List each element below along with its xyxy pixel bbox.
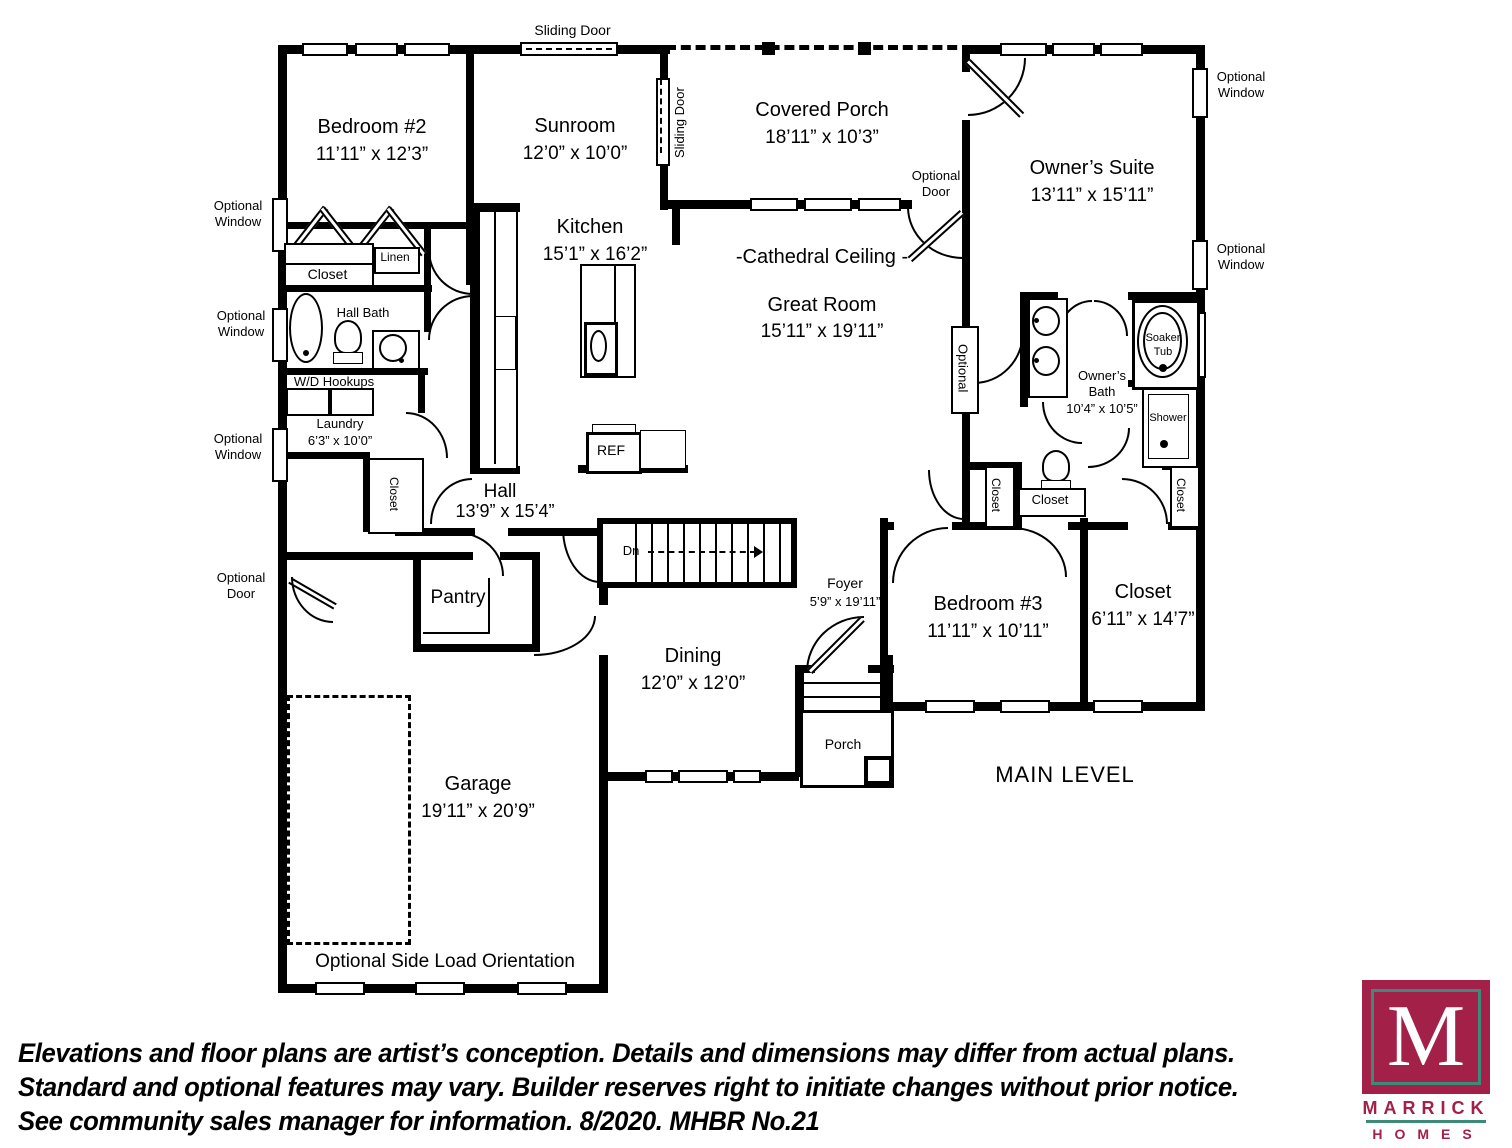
toilet-icon [1042,450,1070,482]
main-level-title: MAIN LEVEL [965,761,1165,789]
logo-rule [1366,1120,1486,1123]
room-dims-foyer: 5’9” x 19’11” [800,594,890,610]
door-swing-icon [428,250,473,295]
sliding-door-label-vertical: Sliding Door [672,78,688,168]
toilet-tank [333,352,363,364]
marrick-homes-logo: M [1362,980,1490,1094]
optional-window-label: Optional Window [1208,241,1274,274]
closet-label-vertical: Closet [386,462,401,526]
window-symbol [678,770,728,783]
optional-door-label: Optional Door [901,168,971,201]
wall [962,120,970,330]
room-label-sunroom: Sunroom [480,114,670,139]
wall [599,655,608,993]
wall [418,368,425,413]
window-symbol [1100,43,1143,56]
door-swing-icon [1088,428,1130,468]
optional-door-label: Optional Door [206,570,276,603]
sink-drain [1034,358,1039,363]
window-symbol [1093,700,1143,713]
room-dims-dining: 12’0” x 12’0” [593,672,793,696]
wall [1128,292,1197,300]
room-label-kitchen: Kitchen [505,215,675,240]
room-label-pantry: Pantry [413,586,503,610]
stair-direction-arrowhead [754,546,763,558]
window-symbol [804,198,852,211]
door-swing-icon [291,577,333,623]
kitchen-counter2 [640,430,686,469]
window-symbol [645,770,673,783]
sink-drain [1034,318,1039,323]
logo-sub-name: HOMES [1362,1126,1494,1142]
porch-step-line [800,682,888,684]
room-label-bedroom2: Bedroom #2 [272,115,472,140]
optional-window-label: Optional Window [1208,69,1274,102]
room-dims-laundry: 6’3” x 10’0” [298,433,382,449]
porch-roof-dashed-line [666,45,972,50]
window-symbol [858,198,901,211]
stairs-down-label: Dn [616,543,646,559]
logo-brand-name: MARRICK [1360,1098,1492,1119]
door-swing-icon [406,412,448,458]
dishwasher-icon [495,316,516,370]
room-dims-sunroom: 12’0” x 10’0” [480,142,670,166]
room-label-closet-big: Closet [1043,580,1243,605]
door-swing-icon [892,527,948,583]
closet-label-vertical: Closet [988,468,1003,522]
window-symbol [1052,43,1095,56]
closet-label: Closet [290,266,365,284]
room-label-laundry: Laundry [300,416,380,432]
disclaimer-line3: See community sales manager for informat… [18,1106,819,1137]
wall [1068,522,1128,530]
door-swing-icon [562,528,600,583]
door-swing-icon [534,616,596,656]
room-label-great-room: Great Room [722,293,922,318]
pantry-shelf-line [423,632,490,634]
disclaimer-line1: Elevations and floor plans are artist’s … [18,1038,1235,1069]
owners-bath-label: Owner’s Bath 10’4” x 10’5” [1057,368,1147,417]
room-label-foyer: Foyer [805,575,885,593]
soaker-tub-label: Soaker Tub [1137,332,1189,360]
door-swing-icon [974,332,1024,384]
porch-step-line [800,696,888,698]
door-swing-icon [1012,527,1067,577]
logo-inner-frame: M [1371,989,1481,1085]
room-label-dining: Dining [593,644,793,669]
shower-label: Shower [1142,412,1194,426]
room-dims-kitchen: 15’1” x 16’2” [505,243,685,267]
window-symbol [415,982,465,995]
optional-window-label: Optional Window [208,308,274,341]
window-symbol [302,43,348,56]
porch-column [864,756,893,785]
wall [282,452,370,459]
porch-post [762,42,775,55]
tub-drain [1159,364,1167,372]
window-symbol [733,770,761,783]
porch-post [858,42,871,55]
optional-window-label: Optional Window [205,431,271,464]
wall [287,552,415,560]
ref-label: REF [589,442,633,460]
optional-window-symbol [272,308,288,362]
room-label-owners-suite: Owner’s Suite [992,156,1192,181]
door-swing-icon [458,532,504,576]
sink-drain [399,358,404,363]
room-dims-garage: 19’11” x 20’9” [378,800,578,824]
room-label-garage: Garage [378,772,578,797]
hall-bath-label: Hall Bath [325,305,401,321]
dryer-icon [330,388,374,416]
room-dims-bedroom2: 11’11” x 12’3” [272,143,472,167]
window-symbol [404,43,450,56]
window-symbol [355,43,398,56]
window-symbol [925,700,975,713]
window-symbol [1000,43,1047,56]
room-dims-great-room: 15’11” x 19’11” [722,320,922,344]
room-label-covered-porch: Covered Porch [722,98,922,123]
door-swing-icon [1122,478,1168,524]
linen-label: Linen [374,250,416,265]
sliding-door-label: Sliding Door [500,22,645,40]
tub-drain [303,350,309,356]
side-load-label: Optional Side Load Orientation [300,950,590,974]
window-symbol [315,982,365,995]
closet-label: Closet [1020,492,1080,508]
optional-opening-label: Optional [954,331,970,406]
closet-label-vertical: Closet [1173,468,1188,522]
optional-window-symbol [1192,240,1208,290]
toilet-icon [334,320,362,354]
washer-icon [286,388,330,416]
shower-inner [1148,394,1189,459]
wall [278,45,287,993]
shower-drain [1160,440,1168,448]
room-dims-closet-big: 6’11” x 14’7” [1043,608,1243,632]
logo-monogram: M [1387,993,1465,1081]
wall [1020,292,1028,407]
room-dims-owners-suite: 13’11” x 15’11” [992,184,1192,208]
closet-shelf-line [284,263,374,265]
wall [413,644,540,652]
window-symbol [1000,700,1050,713]
floor-plan-canvas: Dn [0,0,1512,1148]
stair-direction-line [648,551,756,553]
room-dims-hall: 13’9” x 15’4” [420,500,590,523]
wall [880,522,894,530]
wd-hookups-label: W/D Hookups [286,374,382,390]
window-symbol [517,982,567,995]
sliding-door-track [526,48,612,50]
door-swing-icon [928,470,964,520]
window-symbol [750,198,798,211]
optional-window-symbol [1192,68,1208,118]
optional-window-label: Optional Window [205,198,271,231]
disclaimer-line2: Standard and optional features may vary.… [18,1072,1239,1103]
door-swing-icon [1094,300,1128,336]
cathedral-ceiling-note: -Cathedral Ceiling - [702,245,942,270]
kitchen-sink-icon [590,330,607,362]
room-label-porch: Porch [803,736,883,754]
optional-window-symbol [272,428,288,482]
room-dims-covered-porch: 18’11” x 10’3” [722,126,922,150]
door-swing-icon [428,295,473,340]
